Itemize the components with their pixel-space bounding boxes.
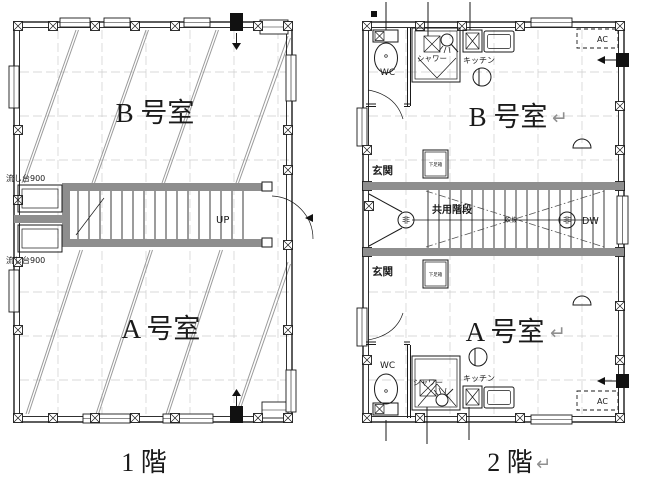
vent-symbol-bottom	[469, 348, 487, 366]
return-mark-b: ↵	[552, 107, 568, 129]
floor2-wc-bottom: WC	[366, 313, 411, 418]
floor2-entrance-bottom: 玄関 下足箱	[372, 260, 448, 288]
room-b-label-1f: B 号室	[116, 98, 195, 128]
floor1-entry-marker-bottom	[230, 389, 243, 423]
shared-stairs-label: 共用階段	[432, 203, 472, 216]
floor1-entry-marker-top	[230, 13, 243, 50]
room-a-label-2f: A 号室	[466, 317, 545, 347]
room-a-label-1f: A 号室	[122, 314, 201, 344]
shower-head-icon	[439, 34, 458, 53]
floor2-kitchen-top: キッチン	[463, 30, 514, 86]
wc-label-top: WC	[380, 68, 395, 78]
floorplan-document: UP 流し台900 流し台900 B 号室 A 号室	[0, 0, 647, 483]
floor2-wall-marker-top	[597, 53, 629, 67]
floor2-wc-top: WC	[366, 28, 411, 119]
vent-symbol-top	[473, 68, 491, 86]
door-jamb-bottom	[262, 238, 272, 247]
kitchen-label-top: キッチン	[463, 56, 495, 65]
floor2-wall-marker-bottom	[597, 374, 629, 388]
floor2-entrance-top: 玄関 下足箱	[372, 150, 448, 178]
floor2-shower-top: シャワー	[412, 28, 460, 82]
floor1-staircase: UP	[14, 182, 313, 247]
toilet-bowl-icon	[375, 374, 398, 404]
sink-label-top: 流し台900	[6, 173, 45, 183]
floor2-kitchen-bottom: キッチン	[463, 348, 514, 408]
return-mark-a: ↵	[550, 322, 566, 344]
door-jamb-top	[262, 182, 272, 191]
floorplan-drawing: UP 流し台900 流し台900 B 号室 A 号室	[0, 0, 647, 483]
floor2-shared-staircase: 非 非 共用階段 吹抜 DW	[363, 182, 624, 256]
return-mark-caption: ↵	[536, 454, 551, 475]
floor2-ac-bottom: AC	[577, 391, 618, 410]
shower-label-bottom: シャワー	[413, 378, 443, 387]
kitchen-label-bottom: キッチン	[463, 374, 495, 383]
dw-label: DW	[582, 216, 599, 227]
floor2-plan: WC シャワー キッチン	[357, 2, 629, 444]
floor2-shower-bottom: シャワー	[412, 356, 460, 410]
svg-text:非: 非	[402, 215, 410, 225]
corridor-door-leaf-top	[369, 194, 402, 212]
floor1-caption: 1 階	[121, 448, 167, 477]
svg-text:玄関: 玄関	[372, 265, 393, 278]
stair-center-label: 吹抜	[505, 216, 517, 224]
up-label: UP	[216, 215, 229, 226]
floor2-caption: 2 階	[487, 448, 533, 477]
room-b-label-2f: B 号室	[469, 102, 548, 132]
ac-label-top: AC	[597, 35, 608, 44]
corridor-door-leaf-bottom	[369, 228, 402, 246]
svg-text:非: 非	[563, 215, 571, 225]
shoebox-label-top: 下足箱	[429, 161, 443, 168]
sink-label-bottom: 流し台900	[6, 255, 45, 265]
wc-label-bottom: WC	[380, 361, 395, 371]
floor1-plan: UP 流し台900 流し台900 B 号室 A 号室	[6, 13, 313, 423]
shower-label-top: シャワー	[417, 54, 447, 63]
shoebox-label-bottom: 下足箱	[429, 271, 443, 278]
svg-text:玄関: 玄関	[372, 164, 393, 177]
floor2-ac-top: AC	[577, 29, 618, 48]
ac-label-bottom: AC	[597, 397, 608, 406]
